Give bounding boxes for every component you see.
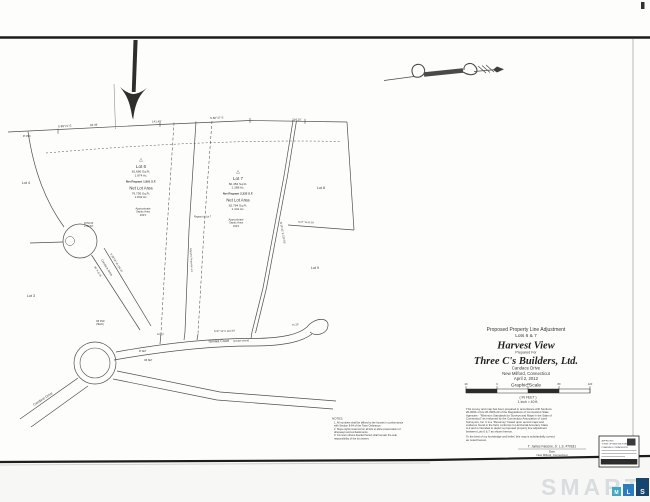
lot6-triangle-icon: △: [139, 157, 143, 162]
watermark-block-s: S: [636, 478, 649, 496]
point-cb-found-held: (HELD): [96, 324, 104, 326]
title-line2: Lots 6 & 7: [515, 333, 537, 339]
smart-mls-watermark: SMART M L S: [541, 473, 650, 502]
lot7-name: Lot 7: [233, 176, 244, 181]
lot6-net-label: Net Lot Area: [129, 186, 153, 191]
bearing-top-1: S 89°21' E: [58, 124, 72, 129]
bearing-lot89: N 87° W 65.00': [298, 221, 315, 225]
scale-num-3: 80: [558, 382, 561, 386]
cert-closing-2: as noted hereon.: [466, 438, 487, 442]
monument-labels: CB FND (HELD) IP SET CB SET IP FND R=50.…: [23, 136, 212, 362]
lot7-septic-3: 100'±: [233, 224, 240, 228]
scale-ratio: 1 inch = 40 ft.: [518, 400, 539, 404]
point-ip-found: IP FND: [23, 136, 31, 138]
bearing-frontage-2: S 87°12' E 110.00': [214, 329, 236, 333]
title-date: April 2, 2012: [514, 376, 539, 381]
lot7-net-ac: 1.441 Ac.: [232, 207, 245, 211]
label-lot3: Lot 3: [27, 294, 35, 298]
title-line1: Proposed Property Line Adjustment: [487, 327, 566, 333]
scale-num-2: 40: [527, 382, 530, 386]
stamp-footer: LAND RECORDS: [609, 460, 630, 464]
distance-top-4: 234.10': [292, 117, 302, 121]
label-lot8: Lot 8: [317, 186, 325, 190]
scale-unit: ( IN FEET ): [519, 396, 536, 400]
lot6-data-block: △ Lot 6 81,686 Sq.Ft. 1.874 Ac. Net Regr…: [126, 157, 156, 217]
bearing-top-3: S 88°47' E: [210, 116, 224, 120]
road-row-label: 50' R.O.W.: [93, 266, 102, 278]
lot7-gross-ac: 1.388 Ac.: [232, 186, 245, 190]
parcel-linework: [8, 84, 354, 427]
point-ip-set: IP SET: [139, 351, 147, 353]
label-lot9: Lot 9: [311, 266, 319, 270]
road-tamika-court: Tamika Court: [208, 339, 229, 344]
scale-num-0: 40: [465, 382, 468, 386]
lot7-triangle-icon: △: [236, 169, 240, 174]
survey-map-drawing: Lot 4 Lot 3 Lot 8 Lot 9 △ Lot 6 81,686 S…: [0, 0, 650, 502]
watermark-block-m: M: [612, 487, 621, 496]
bearing-lot78: N 16°42' E 212.55': [279, 221, 287, 244]
watermark-block-l: L: [623, 484, 634, 496]
regrant-label: Regrant to Lot 7: [194, 216, 212, 219]
scanned-survey-sheet: Lot 4 Lot 3 Lot 8 Lot 9 △ Lot 6 81,686 S…: [0, 0, 650, 502]
lot6-name: Lot 6: [136, 164, 147, 169]
distance-top-1: 94.49': [90, 123, 98, 127]
road-tamika-note: (private street): [233, 339, 249, 343]
distance-frontage-3: 75.25': [292, 322, 300, 327]
distance-frontage-1: 62.13': [157, 332, 165, 336]
north-arrow-icon: [384, 63, 504, 80]
title-prepared-for: Prepared For: [515, 350, 537, 354]
approval-stamp: APPROVED TOWN OF NEW MILFORD PLANNING CO…: [599, 436, 639, 467]
lot6-regrant: Net Regrant 1,891 S.F.: [126, 179, 156, 183]
notes-block: NOTES: 1. All numbers shall be affixed t…: [332, 417, 404, 441]
stamp-line-1: APPROVED: [602, 440, 615, 443]
road-candace-drive: Candace Drive: [32, 391, 53, 407]
point-cb-found: CB FND: [96, 321, 105, 323]
graphic-scale-bar: 40 0 40 80 120 ( IN FEET ) 1 inch = 40 f…: [465, 382, 593, 404]
notes-line-5: responsibility of the lot owners.: [334, 436, 370, 440]
curve-length: L=62.83': [84, 225, 94, 228]
lot6-net-ac: 1.832 Ac.: [135, 195, 148, 199]
scale-num-4: 120: [588, 382, 593, 386]
lot7-data-block: △ Lot 7 60,452 Sq.Ft. 1.388 Ac. Net Regr…: [223, 169, 253, 228]
lot7-regrant: Net Regrant 2,332 S.F.: [223, 192, 253, 196]
signature-place: New Milford, Connecticut: [536, 453, 567, 457]
scale-num-1: 0: [496, 382, 498, 386]
lot6-septic-3: 100'±: [140, 213, 147, 217]
lot7-net-label: Net Lot Area: [226, 198, 250, 203]
lot6-gross-ac: 1.874 Ac.: [135, 173, 148, 177]
stamp-line-3: PLANNING COMMISSION: [602, 446, 629, 449]
title-block: Proposed Property Line Adjustment Lots 6…: [474, 327, 578, 389]
distance-top-2: 141.49': [152, 119, 162, 123]
surveyor-signature: T. James Falcone, Jr. L.S. #70181: [528, 445, 576, 449]
notes-heading: NOTES:: [332, 417, 343, 421]
certification-block: This survey and map has been prepared in…: [466, 407, 586, 457]
point-cb-set: CB SET: [144, 360, 153, 362]
adjusted-line-label: Adjusted Property Line: [189, 248, 193, 273]
cert-line-7: between Lots 6 & 7 as shown hereon.: [466, 429, 513, 433]
stamp-line-2: TOWN OF NEW MILFORD: [602, 444, 629, 446]
down-arrow-annotation: [120, 40, 147, 120]
label-lot4: Lot 4: [22, 181, 30, 185]
